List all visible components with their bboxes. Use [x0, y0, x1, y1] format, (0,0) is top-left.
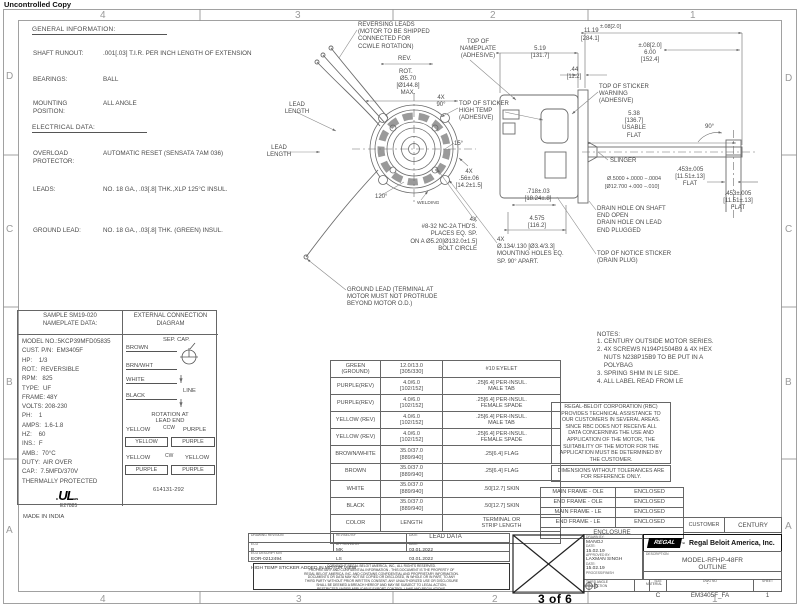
nameplate-line: HZ: 60 — [22, 431, 45, 438]
rotation-label: ROTATION ATLEAD END — [151, 412, 188, 424]
drawing-annotation: 5.38 [136.7] USABLE FLAT — [622, 111, 646, 140]
customer-value-cell: CENTURY — [724, 517, 782, 533]
note-line: 4. ALL LABEL READ FROM LE — [597, 378, 714, 386]
model-description-line1: MODEL-RFHP-48FR — [682, 557, 743, 564]
zone-label: 2 — [492, 594, 498, 605]
general-info-value: .001[.03] T.I.R. PER INCH LENGTH OF EXTE… — [103, 50, 252, 57]
rev-label: DRAWING REVISION — [251, 534, 333, 538]
drawing-annotation: 5.19 [131.7] — [531, 46, 549, 60]
rev-date-label: DATE — [409, 534, 509, 538]
nameplate-line: PH: 1 — [22, 412, 42, 419]
nameplate-data-cell: MODEL NO.:5KCP39MFD05835CUST. P/N: EM340… — [18, 335, 123, 506]
eco-date-value: 03.01.2022 — [409, 557, 433, 562]
dwg-no-value: EM3405F_FA — [691, 592, 730, 599]
enclosure-value-cell: ENCLOSED — [616, 488, 684, 498]
drawing-annotation: Ø5.70 [Ø144.8] MAX. — [396, 76, 419, 98]
zone-label: B — [785, 377, 792, 388]
disclaimer-line: PROVIDES TECHNICAL ASSISTANCE TO — [552, 411, 670, 418]
dwg-no-cell: DWG NO EM3405F_FA — [667, 580, 754, 591]
lead-length-cell: 4.0/6.0 [102/152] — [381, 395, 443, 412]
nameplate-header-line2: NAMEPLATE DATA: — [43, 321, 97, 327]
drawing-annotation: [284.1] — [581, 36, 599, 43]
general-info-value: NO. 18 GA., .03[.8] THK. (GREEN) INSUL. — [103, 227, 223, 234]
disclaimer-line: APPLICATION OF THE MOTOR, THE — [552, 437, 670, 444]
zone-label: C — [785, 224, 792, 235]
nameplate-line: CAP.: 7.5MFD/370V — [22, 468, 78, 475]
zone-label: D — [6, 71, 13, 82]
company-name: Regal Beloit America, Inc. — [689, 540, 775, 547]
lead-color-cell: BROWN/WHITE — [331, 446, 381, 463]
drawing-annotation: [Ø12.700 +.000 −.010] — [605, 184, 659, 190]
drawing-annotation: DRAIN HOLE ON SHAFT END OPEN DRAIN HOLE … — [597, 206, 666, 235]
notes-lines: 1. CENTURY OUTSIDE MOTOR SERIES.2. 4X SC… — [597, 338, 714, 386]
drawing-annotation: 4.575 [116.2] — [528, 216, 546, 230]
zone-label: 1 — [690, 10, 696, 21]
enclosure-row: END FRAME - OLEENCLOSED — [541, 498, 684, 508]
general-info-label: LEADS: — [33, 186, 55, 194]
zone-label: B — [6, 377, 13, 388]
legal-fine-print: COPYRIGHT REGAL BELOIT AMERICA, INC., AL… — [253, 563, 510, 590]
nameplate-line: INS.: F — [22, 440, 43, 447]
disclaimer-line: APPLICATION MUST BE DETERMINED BY — [552, 450, 670, 457]
lead-color-cell: YELLOW (REV) — [331, 429, 381, 446]
drawing-annotation: 15° — [454, 141, 463, 148]
lead-length-cell: 35.0/37.0 [889/940] — [381, 480, 443, 497]
enclosure-frame-cell: MAIN FRAME - LE — [541, 508, 616, 518]
general-info-label: BEARINGS: — [33, 76, 67, 84]
eco-label: ECO — [251, 543, 333, 547]
nameplate-line: VOLTS: 208-230 — [22, 403, 67, 410]
ul-us: us — [74, 496, 79, 501]
note-line: 3. SPRING SHIM IN LE SIDE. — [597, 370, 714, 378]
lead-length-cell: 35.0/37.0 [889/940] — [381, 497, 443, 514]
disclaimer-line: SUITABILITY OF THE MOTOR FOR THE — [552, 444, 670, 451]
note-line: 1. CENTURY OUTSIDE MOTOR SERIES. — [597, 338, 714, 346]
nameplate-line: ROT.: REVERSIBLE — [22, 366, 79, 373]
disclaimer-line: REGAL-BELOIT CORPORATION (RBC) — [552, 404, 670, 411]
nameplate-line: AMB.: 70°C — [22, 450, 56, 457]
nameplate-line: HP: 1/3 — [22, 357, 47, 364]
lead-table-row: WHITE35.0/37.0 [889/940].50[12.7] SKIN — [331, 480, 561, 497]
general-info-label: SHAFT RUNOUT: — [33, 50, 83, 58]
nameplate-line: THERMALLY PROTECTED — [22, 478, 97, 485]
dimensions-note-box: DIMENSIONS WITHOUT TOLERANCES AREFOR REF… — [551, 465, 671, 482]
cw-box-right: PURPLE — [171, 465, 215, 475]
connection-header-line1: EXTERNAL CONNECTION — [134, 313, 207, 319]
zone-label: C — [6, 224, 13, 235]
drawing-annotation: LEAD LENGTH — [267, 145, 291, 159]
drawing-annotation: TOP OF NAMEPLATE (ADHESIVE) — [460, 39, 496, 61]
drawing-annotation: 4X Ø.134/.130 [Ø3.4/3.3] MOUNTING HOLES … — [497, 237, 564, 266]
zone-label: 2 — [490, 10, 496, 21]
enclosure-table: MAIN FRAME - OLEENCLOSEDEND FRAME - OLEE… — [540, 487, 684, 539]
drawing-annotation: 120° — [375, 194, 387, 201]
drawing-annotation: ±.08[2.0] — [600, 24, 621, 30]
ccw-label: CCW — [163, 425, 175, 431]
eco-approved-label: APPROVED BY — [336, 543, 406, 547]
lead-table-row: BROWN35.0/37.0 [889/940].25[6.4] FLAG — [331, 463, 561, 480]
drawing-annotation: REVERSING LEADS (MOTOR TO BE SHIPPED CON… — [358, 22, 430, 51]
lead-color-cell: YELLOW (REV) — [331, 412, 381, 429]
general-info-title: GENERAL INFORMATION: — [32, 26, 167, 35]
made-in-label: MADE IN INDIA — [23, 514, 64, 520]
cw-top-right: YELLOW — [185, 455, 210, 461]
drawing-annotation: .453±.005 [11.51±.13] FLAT — [675, 167, 705, 189]
ccw-box-left: YELLOW — [125, 437, 168, 447]
sheet-cell: SHEET 1 — [754, 580, 781, 591]
zone-label: 3 — [296, 594, 302, 605]
note-line: POLYBAG — [597, 362, 714, 370]
drawing-annotation: .44 [11.2] — [567, 67, 582, 81]
enclosure-value-cell: ENCLOSED — [616, 498, 684, 508]
connection-header-line2: DIAGRAM — [156, 321, 184, 327]
drawing-annotation: 4X #8-32 NC-2A THD'S. PLACES EQ. SP. ON … — [410, 217, 477, 253]
lead-length-cell: 35.0/37.0 [889/940] — [381, 446, 443, 463]
zone-label: 3 — [295, 10, 301, 21]
drawing-annotation: 4X 90° — [436, 95, 445, 109]
drawing-annotation: ±.08[2.0] 6.00 [152.4] — [638, 43, 661, 65]
ul-file-number: E27885 — [60, 503, 77, 509]
lead-table-row: PURPLE(REV)4.0/6.0 [102/152].25[6.4] PER… — [331, 378, 561, 395]
note-line: NUTS N238P15B9 TO BE PUT IN A — [597, 354, 714, 362]
lead-table-row: YELLOW (REV)4.0/6.0 [102/152].25[6.4] PE… — [331, 429, 561, 446]
nameplate-line: FRAME: 48Y — [22, 394, 58, 401]
lead-color-cell: GREEN (GROUND) — [331, 361, 381, 378]
drawing-annotation: GROUND LEAD (TERMINAL AT MOTOR MUST NOT … — [347, 287, 437, 309]
nameplate-line: AMPS: 1.6-1.8 — [22, 422, 63, 429]
lead-color-cell: PURPLE(REV) — [331, 395, 381, 412]
disclaimer-line: DATA CONCERNING THE USE AND — [552, 430, 670, 437]
lead-table-row: COLORLENGTHTERMINAL OR STRIP LENGTH — [331, 514, 561, 531]
size-cell: SIZE C — [650, 580, 667, 591]
lead-terminal-cell: .25[6.4] PER-INSUL. FEMALE SPADE — [443, 395, 561, 412]
enclosure-row: END FRAME - LEENCLOSED — [541, 518, 684, 528]
lead-table-row: PURPLE(REV)4.0/6.0 [102/152].25[6.4] PER… — [331, 395, 561, 412]
zone-label: A — [785, 521, 792, 532]
nameplate-header-line1: SAMPLE SM19-020 — [43, 313, 97, 319]
cw-top-left: YELLOW — [126, 455, 151, 461]
ccw-top-right: PURPLE — [183, 427, 207, 433]
lead-table-row: GREEN (GROUND)12.0/13.0 [305/330]#10 EYE… — [331, 361, 561, 378]
trademark-symbol: ™ — [681, 541, 685, 546]
enclosure-frame-cell: MAIN FRAME - OLE — [541, 488, 616, 498]
note-line: 2. 4X SCREWS N194P1504B9 & 4X HEX — [597, 346, 714, 354]
lead-length-cell: LENGTH — [381, 514, 443, 531]
lead-length-cell: 4.0/6.0 [102/152] — [381, 429, 443, 446]
zone-label: 4 — [100, 594, 106, 605]
regal-badge: REGAL — [647, 538, 682, 548]
size-label: SIZE — [650, 580, 666, 584]
zone-label: 4 — [100, 10, 106, 21]
cw-box-left: PURPLE — [125, 465, 168, 475]
nameplate-line: DUTY: AIR OVER — [22, 459, 72, 466]
title-block-description: DESCRIPTION MODEL-RFHP-48FR OUTLINE — [643, 551, 782, 572]
title-block-signatures: DRAWN BY: MANOJ DATE: 15.02.19 APPROVED … — [583, 534, 643, 580]
uncontrolled-copy-stamp: Uncontrolled Copy — [4, 0, 71, 9]
customer-label-cell: CUSTOMER — [683, 517, 725, 533]
lead-color-cell: COLOR — [331, 514, 381, 531]
nameplate-header-cell: SAMPLE SM19-020 NAMEPLATE DATA: — [18, 311, 123, 335]
drawing-annotation: 4X .56±.06 [14.2±1.5] — [456, 169, 483, 191]
lead-terminal-cell: .25[6.4] PER-INSUL. MALE TAB — [443, 378, 561, 395]
third-angle-symbol — [635, 580, 650, 591]
enclosure-frame-cell: END FRAME - OLE — [541, 498, 616, 508]
notes-title: NOTES: — [597, 331, 714, 338]
general-info-value: AUTOMATIC RESET (SENSATA 7AM 036) — [103, 150, 223, 157]
connection-header-cell: EXTERNAL CONNECTION DIAGRAM — [123, 311, 218, 335]
model-description-line2: OUTLINE — [698, 564, 726, 571]
line-label: LINE — [183, 388, 196, 394]
rotation-line2: LEAD END — [155, 418, 184, 424]
drawing-annotation: TOP OF NOTICE STICKER (DRAIN PLUG) — [597, 251, 671, 265]
nameplate-line: RPM: 825 — [22, 375, 52, 382]
nameplate-line: MODEL NO.:5KCP39MFD05835 — [22, 338, 111, 345]
enclosure-frame-cell: END FRAME - LE — [541, 518, 616, 528]
lead-length-cell: 4.0/6.0 [102/152] — [381, 378, 443, 395]
ccw-top-left: YELLOW — [126, 427, 151, 433]
revised-by-label: REVISED BY — [336, 534, 406, 538]
enclosure-row: MAIN FRAME - LEENCLOSED — [541, 508, 684, 518]
drawing-annotation: Ø.5000 +.0000 −.0004 — [607, 176, 661, 182]
page-marker: 3 of 6 — [538, 592, 572, 606]
lead-data-table: GREEN (GROUND)12.0/13.0 [305/330]#10 EYE… — [330, 360, 561, 544]
sheet-label: SHEET — [754, 580, 781, 584]
drawing-annotation: .453±.005 [11.51±.13] FLAT — [723, 191, 753, 213]
engineering-drawing-sheet: Uncontrolled Copy 4321 4321 DCBA DCBA GE… — [0, 0, 800, 611]
general-info-value: ALL ANGLE — [103, 100, 137, 107]
general-info-label: MOUNTING POSITION: — [33, 100, 67, 116]
rbc-disclaimer-box: REGAL-BELOIT CORPORATION (RBC)PROVIDES T… — [551, 402, 671, 464]
drawing-annotation: .718±.03 [18.24±.8] — [525, 189, 552, 203]
lead-color-cell: WHITE — [331, 480, 381, 497]
nameplate-block: SAMPLE SM19-020 NAMEPLATE DATA: EXTERNAL… — [17, 310, 217, 505]
lead-table-row: YELLOW (REV)4.0/6.0 [102/152].25[6.4] PE… — [331, 412, 561, 429]
lead-terminal-cell: .25[6.4] FLAG — [443, 446, 561, 463]
disclaimer-line: OUR CUSTOMERS IN SEVERAL AREAS. — [552, 417, 670, 424]
lead-length-cell: 4.0/6.0 [102/152] — [381, 412, 443, 429]
drawing-annotation: WELDING — [417, 201, 439, 207]
general-info-label: OVERLOAD PROTECTOR: — [33, 150, 74, 166]
external-connection-diagram: SEP. CAP. BROWNBRN/WHTWHITEBLACK LINE RO… — [123, 335, 218, 506]
process-finish-label: PROCESS/FINISH — [586, 572, 640, 576]
notes-block: NOTES: 1. CENTURY OUTSIDE MOTOR SERIES.2… — [597, 331, 714, 386]
enclosure-value-cell: ENCLOSED — [616, 518, 684, 528]
lead-color-cell: BROWN — [331, 463, 381, 480]
disclaimer-line: SINCE RBC DOES NOT RECEIVE ALL — [552, 424, 670, 431]
size-value: C — [656, 592, 661, 599]
lead-length-cell: 35.0/37.0 [889/940] — [381, 463, 443, 480]
drawing-annotation: TOP OF STICKER HIGH TEMP (ADHESIVE) — [459, 101, 509, 123]
lead-length-cell: 12.0/13.0 [305/330] — [381, 361, 443, 378]
disclaimer-line: THE CUSTOMER. — [552, 457, 670, 464]
cw-label: CW — [165, 453, 173, 459]
ccw-box-right: PURPLE — [171, 437, 215, 447]
nameplate-line: CUST. P/N: EM3405F — [22, 347, 83, 354]
lead-terminal-cell: .25[6.4] FLAG — [443, 463, 561, 480]
zone-label: A — [6, 525, 13, 536]
company-logo: REGAL ™ Regal Beloit America, Inc. — [643, 534, 782, 552]
title-block-bottom-row: THIRD ANGLE PROJECTION SIZE C DWG NO EM3… — [583, 579, 782, 592]
lead-table-row: BROWN/WHITE35.0/37.0 [889/940].25[6.4] F… — [331, 446, 561, 463]
dwg-no-label: DWG NO — [667, 580, 753, 584]
lead-color-cell: PURPLE(REV) — [331, 378, 381, 395]
drawing-annotation: 90° — [705, 124, 714, 131]
drawing-annotation: LEAD LENGTH — [285, 102, 309, 116]
enclosure-value-cell: ENCLOSED — [616, 508, 684, 518]
general-info-label: GROUND LEAD: — [33, 227, 81, 235]
lead-table-row: BLACK35.0/37.0 [889/940].50[12.7] SKIN — [331, 497, 561, 514]
ul-letters: UL — [58, 488, 73, 503]
lead-terminal-cell: .25[6.4] PER-INSUL. FEMALE SPADE — [443, 429, 561, 446]
dims-note-line: FOR REFERENCE ONLY. — [552, 474, 670, 480]
sheet-value: 1 — [766, 593, 769, 599]
revision-block: DRAWING REVISIONB REVISED BYMK DATE03.01… — [248, 533, 510, 562]
drawing-annotation: 11.19 — [584, 28, 599, 35]
fine-print-line: RESTRICTED UNDER APPLICABLE EXPORT CONTR… — [254, 588, 509, 592]
drawing-annotation: REV. — [398, 56, 411, 63]
enclosure-row: MAIN FRAME - OLEENCLOSED — [541, 488, 684, 498]
nameplate-line: TYPE: UF — [22, 385, 51, 392]
lead-terminal-cell: #10 EYELET — [443, 361, 561, 378]
drawing-annotation: TOP OF STICKER WARNING (ADHESIVE) — [599, 84, 649, 106]
general-info-value: NO. 18 GA., .03[.8] THK.,XLP 125°C INSUL… — [103, 186, 227, 193]
connection-part-number: 614131-292 — [153, 487, 184, 493]
zone-label: D — [785, 73, 792, 84]
electrical-data-title: ELECTRICAL DATA: — [32, 124, 147, 133]
eco-date-label: DATE — [409, 543, 509, 547]
lead-terminal-cell: .25[6.4] PER-INSUL. MALE TAB — [443, 412, 561, 429]
general-info-value: BALL — [103, 76, 118, 83]
drawing-annotation: SLINGER — [610, 158, 636, 165]
lead-color-cell: BLACK — [331, 497, 381, 514]
